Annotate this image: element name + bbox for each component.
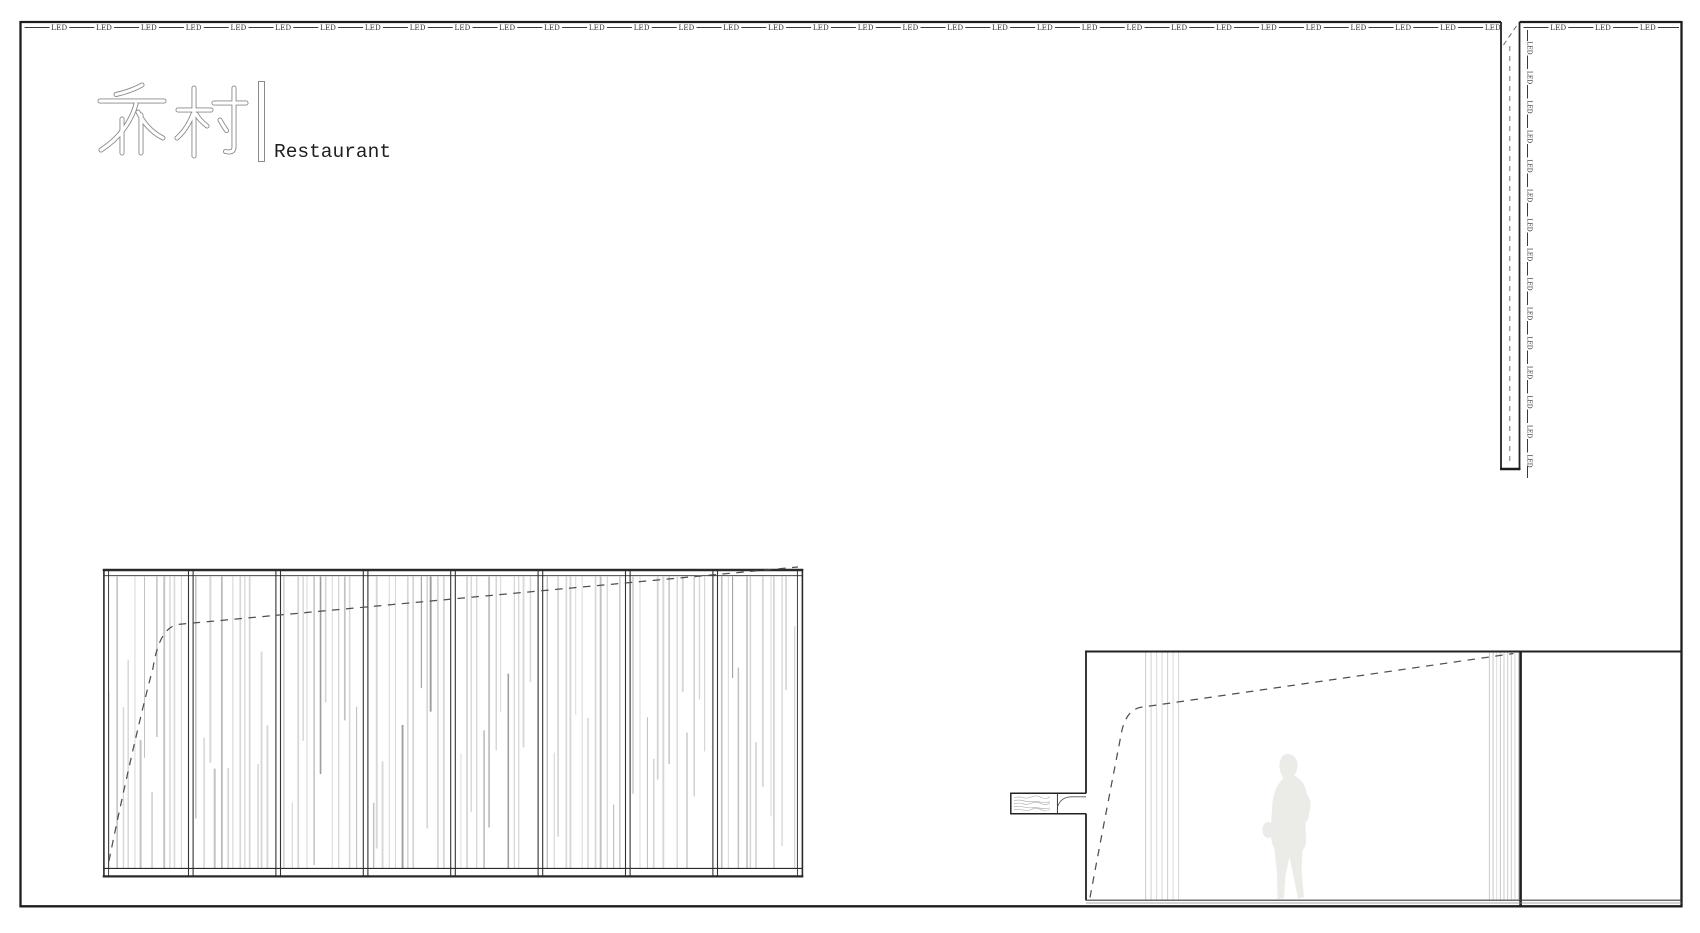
svg-text:LED: LED xyxy=(1526,454,1533,467)
floor-lines xyxy=(1086,900,1682,903)
svg-text:LED: LED xyxy=(1526,159,1533,172)
drawing-canvas: LEDLEDLEDLEDLEDLEDLEDLEDLEDLEDLEDLEDLEDL… xyxy=(0,0,1700,933)
svg-text:LED: LED xyxy=(1216,24,1232,32)
curtain-lines-mid xyxy=(1146,653,1179,900)
svg-text:LED: LED xyxy=(1395,24,1411,32)
elevation-panel xyxy=(103,567,804,877)
led-strip-top-right: LEDLEDLED xyxy=(1524,24,1680,32)
person-silhouette xyxy=(1263,754,1311,900)
svg-text:LED: LED xyxy=(992,24,1008,32)
svg-text:LED: LED xyxy=(1351,24,1367,32)
svg-text:LED: LED xyxy=(499,24,515,32)
svg-text:LED: LED xyxy=(141,24,157,32)
svg-text:LED: LED xyxy=(634,24,650,32)
svg-text:LED: LED xyxy=(679,24,695,32)
svg-text:LED: LED xyxy=(1640,24,1656,32)
svg-text:LED: LED xyxy=(1526,366,1533,379)
svg-text:LED: LED xyxy=(1440,24,1456,32)
svg-text:LED: LED xyxy=(1526,336,1533,349)
svg-text:LED: LED xyxy=(1526,218,1533,231)
svg-text:LED: LED xyxy=(231,24,247,32)
svg-text:LED: LED xyxy=(186,24,202,32)
led-strip-top-left: LEDLEDLEDLEDLEDLEDLEDLEDLEDLEDLEDLEDLEDL… xyxy=(25,24,1502,32)
wall-column-section xyxy=(1500,22,1521,470)
panel-frame xyxy=(103,569,804,877)
svg-text:LED: LED xyxy=(1485,24,1501,32)
svg-text:LED: LED xyxy=(96,24,112,32)
svg-text:LED: LED xyxy=(51,24,67,32)
svg-text:LED: LED xyxy=(858,24,874,32)
led-corner-dash xyxy=(1504,25,1518,46)
column-led-strip: LEDLEDLEDLEDLEDLEDLEDLEDLEDLEDLEDLEDLEDL… xyxy=(1526,30,1533,478)
svg-text:LED: LED xyxy=(320,24,336,32)
svg-text:LED: LED xyxy=(1526,100,1533,113)
svg-text:LED: LED xyxy=(1082,24,1098,32)
svg-text:LED: LED xyxy=(1526,425,1533,438)
svg-text:LED: LED xyxy=(410,24,426,32)
panel-slats xyxy=(109,577,795,869)
svg-text:LED: LED xyxy=(455,24,471,32)
svg-text:LED: LED xyxy=(1306,24,1322,32)
shelf-bracket-line xyxy=(1058,797,1086,806)
logo-divider xyxy=(258,81,265,162)
svg-text:LED: LED xyxy=(768,24,784,32)
svg-text:LED: LED xyxy=(1526,189,1533,202)
svg-text:LED: LED xyxy=(723,24,739,32)
svg-text:LED: LED xyxy=(1526,277,1533,290)
svg-text:LED: LED xyxy=(1526,395,1533,408)
svg-text:LED: LED xyxy=(1171,24,1187,32)
svg-text:LED: LED xyxy=(275,24,291,32)
restaurant-section xyxy=(1011,651,1682,906)
svg-text:LED: LED xyxy=(1526,130,1533,143)
shelf-wood-hatch xyxy=(1014,796,1050,811)
svg-text:LED: LED xyxy=(903,24,919,32)
display-shelf xyxy=(1011,793,1087,815)
svg-text:LED: LED xyxy=(1550,24,1566,32)
svg-text:LED: LED xyxy=(589,24,605,32)
svg-text:LED: LED xyxy=(365,24,381,32)
svg-text:LED: LED xyxy=(1595,24,1611,32)
svg-text:LED: LED xyxy=(1526,41,1533,54)
svg-text:LED: LED xyxy=(947,24,963,32)
brand-logo: Restaurant xyxy=(93,78,391,162)
section-walls xyxy=(1085,651,1682,906)
svg-text:LED: LED xyxy=(813,24,829,32)
hanzi-logo-icon xyxy=(93,78,251,162)
curtain-lines-right xyxy=(1489,653,1518,900)
svg-text:LED: LED xyxy=(544,24,560,32)
svg-text:LED: LED xyxy=(1526,307,1533,320)
svg-text:LED: LED xyxy=(1261,24,1277,32)
svg-text:LED: LED xyxy=(1127,24,1143,32)
svg-text:LED: LED xyxy=(1526,248,1533,261)
svg-text:LED: LED xyxy=(1526,71,1533,84)
svg-text:LED: LED xyxy=(1037,24,1053,32)
brand-latin-label: Restaurant xyxy=(274,142,391,162)
